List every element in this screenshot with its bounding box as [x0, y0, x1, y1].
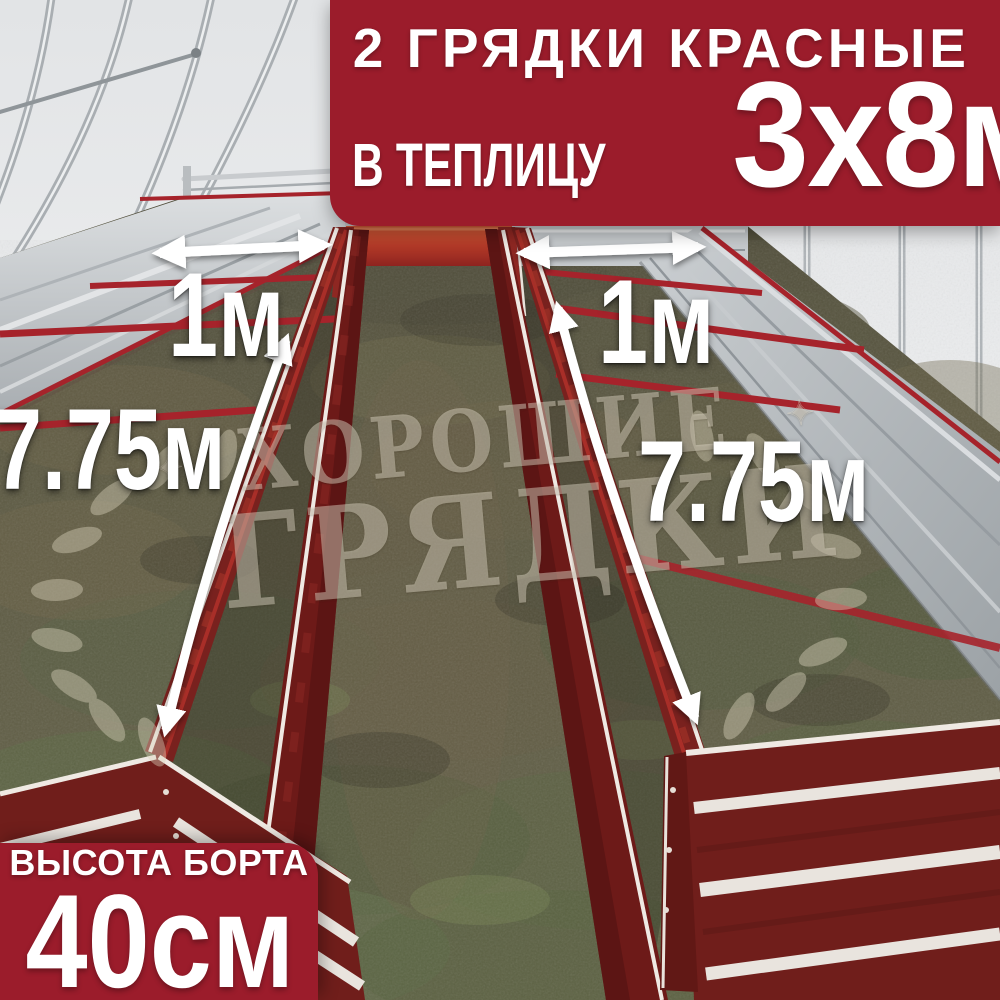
label-bed-width-left: 1м — [168, 255, 324, 375]
label-text: 7.75м — [638, 425, 870, 540]
label-text: 1м — [598, 262, 715, 382]
label-bed-width-right: 1м — [598, 262, 754, 382]
board-height-value: 40см — [25, 876, 292, 1000]
greenhouse-size-value: 3х8м — [732, 74, 1000, 194]
label-bed-length-right: 7.75м — [638, 425, 947, 540]
label-bed-length-left: 7.75м — [0, 393, 303, 508]
product-image: ✦ ХОРОШИЕ ✦ ГРЯДКИ 1м 1м 7.75м — [0, 0, 1000, 1000]
label-text: 1м — [168, 255, 285, 375]
board-height-banner: ВЫСОТА БОРТА 40см — [0, 843, 318, 1000]
headline-prefix: В ТЕПЛИЦУ — [352, 130, 605, 200]
headline-line2: В ТЕПЛИЦУ 3х8м — [352, 74, 972, 200]
label-text: 7.75м — [0, 393, 226, 508]
headline-banner: 2 ГРЯДКИ КРАСНЫЕ В ТЕПЛИЦУ 3х8м — [330, 0, 1000, 226]
